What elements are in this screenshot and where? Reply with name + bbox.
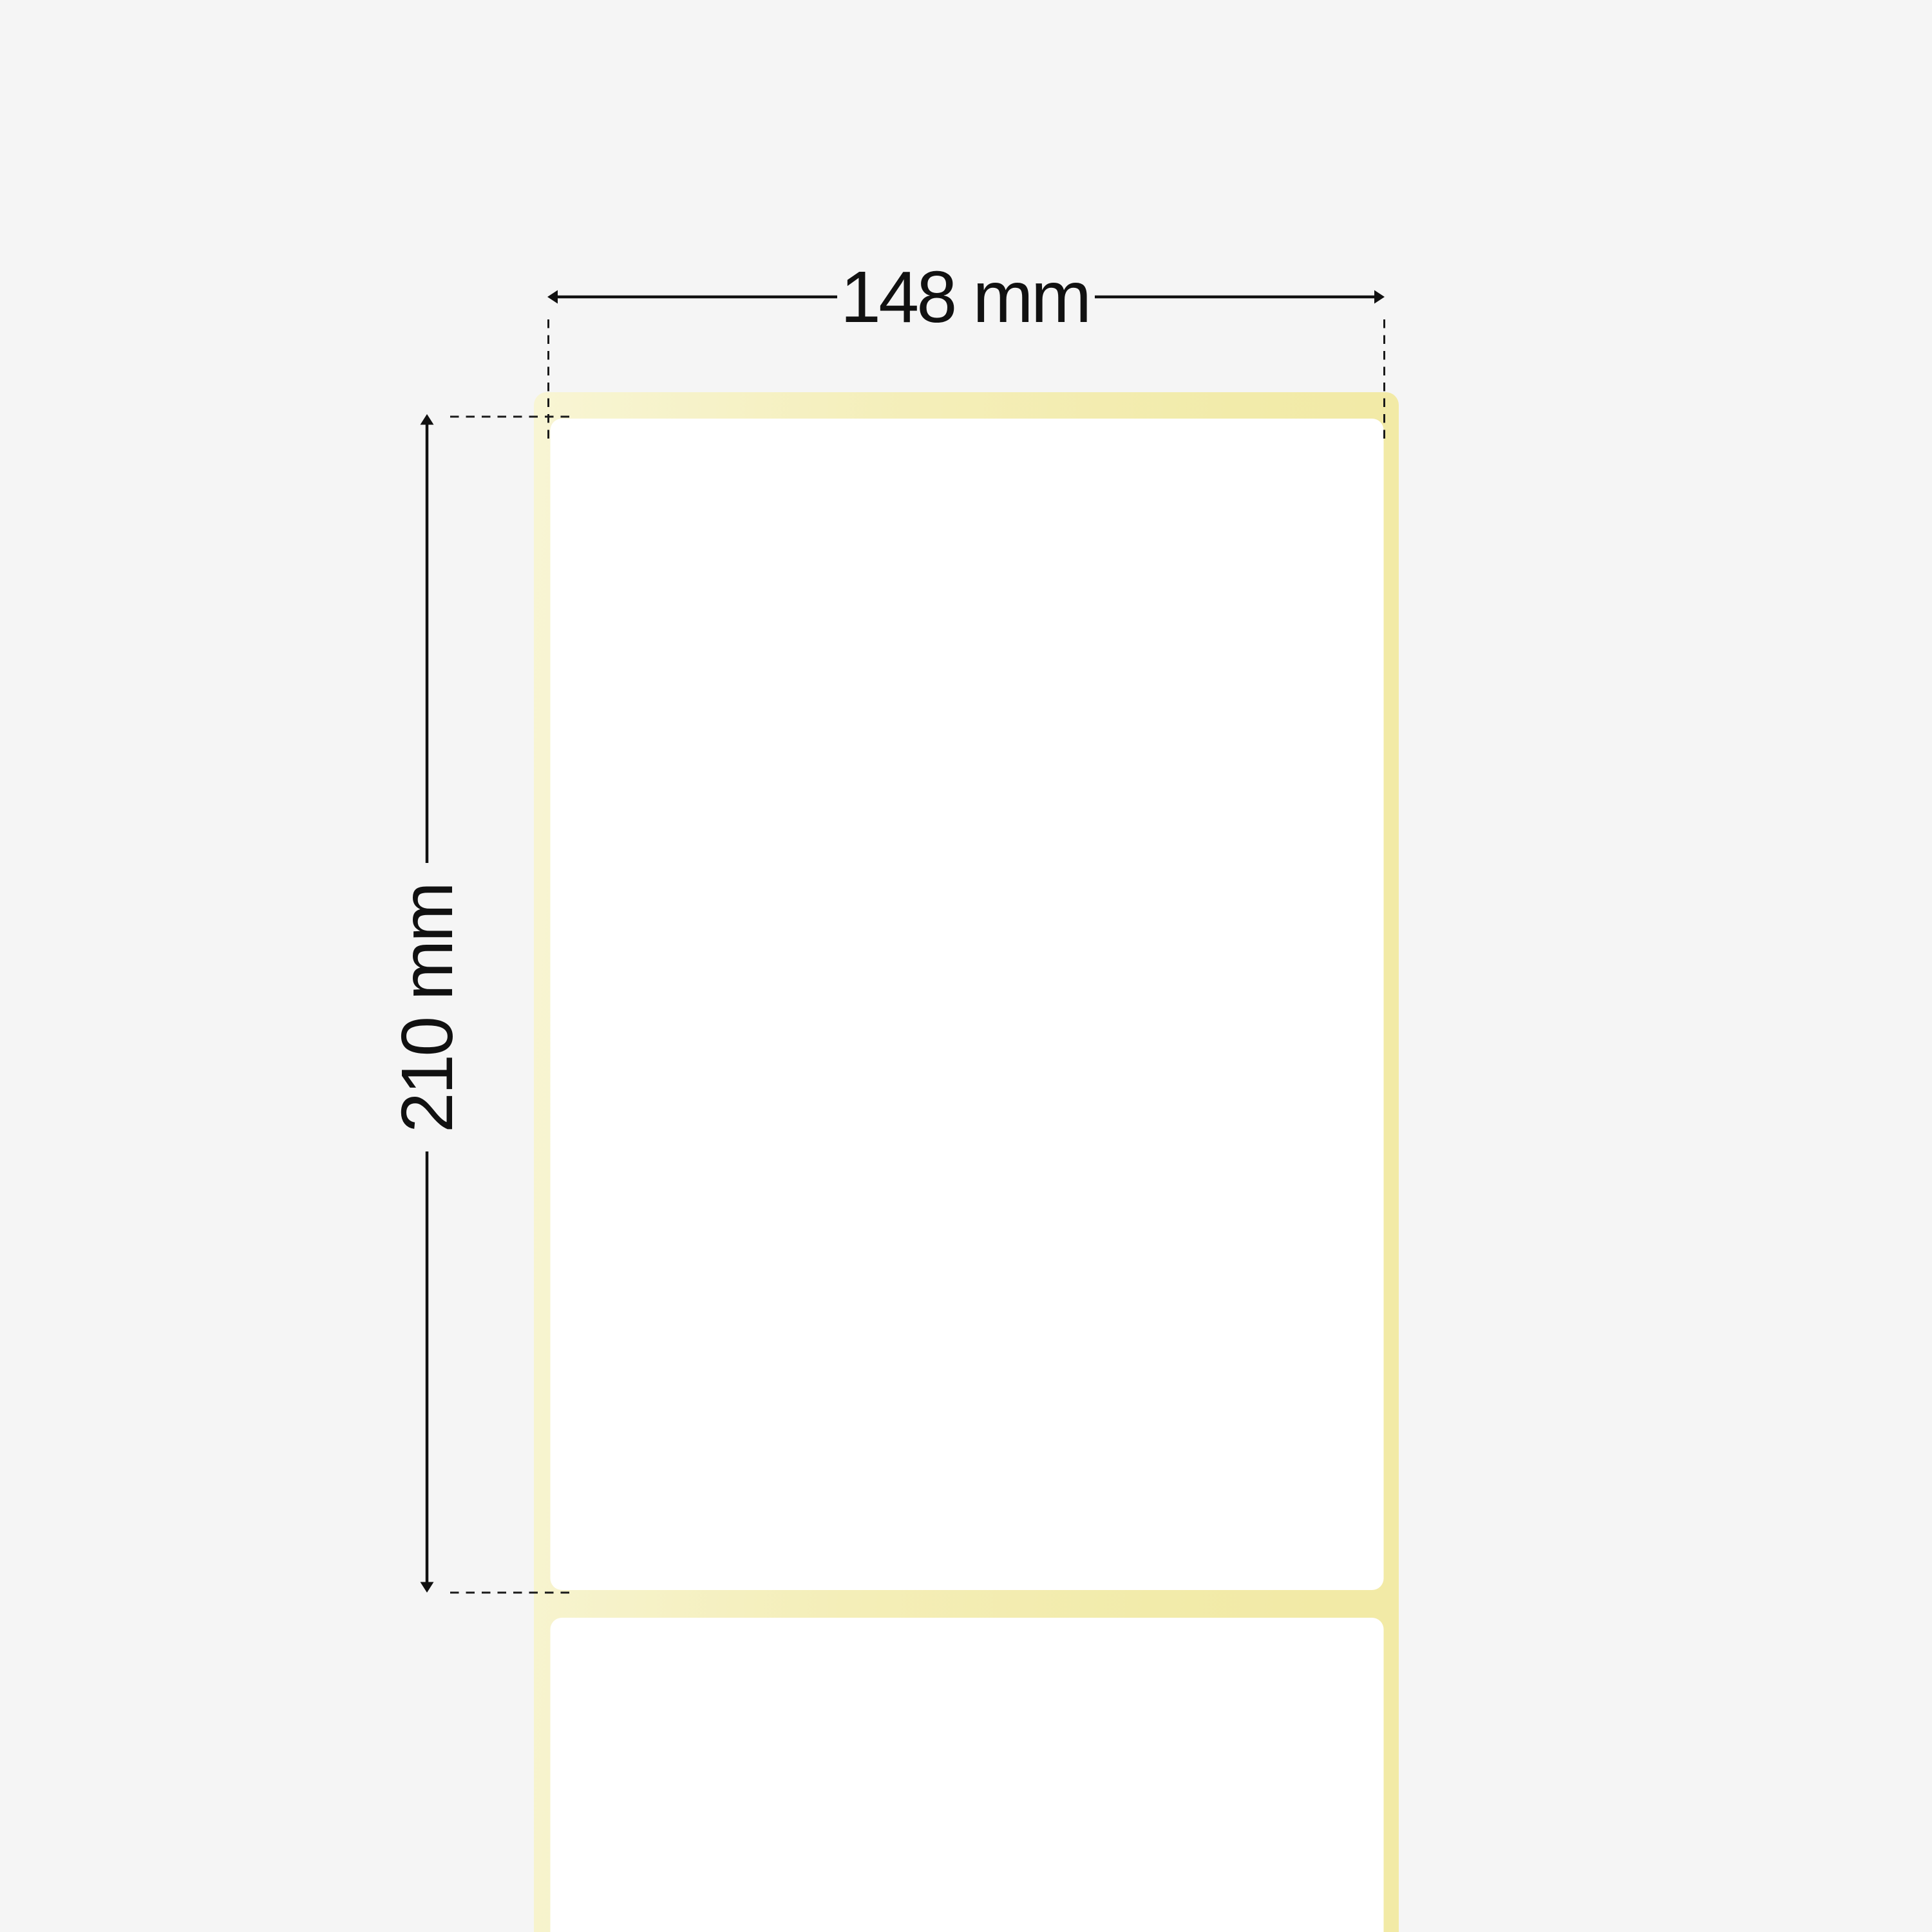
svg-text:148 mm: 148 mm (840, 256, 1092, 337)
svg-text:210 mm: 210 mm (386, 882, 468, 1133)
